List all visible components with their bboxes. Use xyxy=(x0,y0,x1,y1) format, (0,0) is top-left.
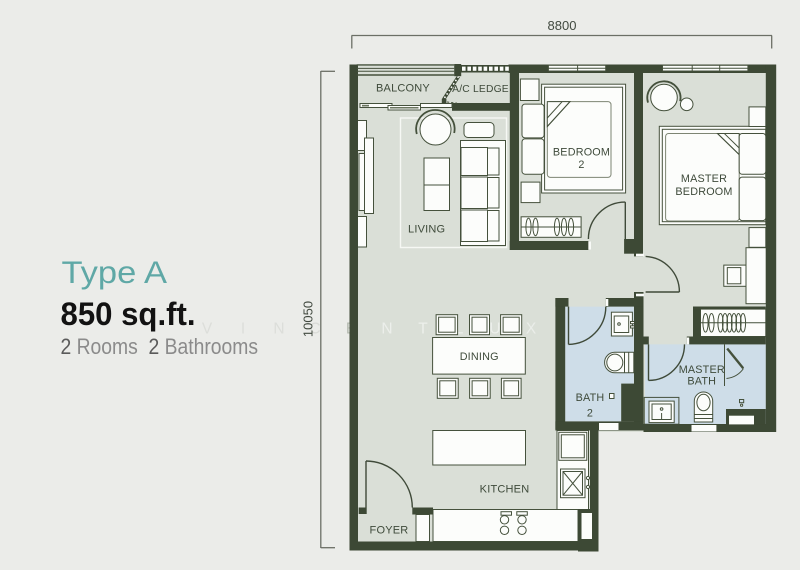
svg-text:MASTER: MASTER xyxy=(681,173,727,185)
svg-text:8800: 8800 xyxy=(548,18,577,33)
svg-text:LIVING: LIVING xyxy=(408,224,445,236)
svg-text:X: X xyxy=(526,321,537,338)
svg-text:KITCHEN: KITCHEN xyxy=(480,484,530,496)
svg-text:N: N xyxy=(273,321,284,338)
svg-text:BEDROOM: BEDROOM xyxy=(675,186,732,198)
svg-text:FOYER: FOYER xyxy=(370,525,409,537)
svg-text:2: 2 xyxy=(578,159,584,171)
svg-text:N: N xyxy=(381,321,392,338)
svg-text:U: U xyxy=(489,321,500,338)
svg-text:DINING: DINING xyxy=(460,351,499,363)
svg-text:BATH: BATH xyxy=(687,376,716,388)
svg-text:2 Rooms 2 Bathrooms: 2 Rooms 2 Bathrooms xyxy=(61,334,259,359)
svg-text:MASTER: MASTER xyxy=(679,364,725,376)
svg-text:A/C LEDGE: A/C LEDGE xyxy=(452,84,509,95)
svg-text:10050: 10050 xyxy=(301,301,316,337)
svg-text:2: 2 xyxy=(587,408,593,420)
svg-text:850 sq.ft.: 850 sq.ft. xyxy=(61,296,196,332)
svg-text:BATH: BATH xyxy=(576,392,605,404)
svg-text:Type A: Type A xyxy=(62,254,168,290)
svg-text:BEDROOM: BEDROOM xyxy=(553,146,610,158)
svg-text:BALCONY: BALCONY xyxy=(376,83,430,95)
svg-text:T: T xyxy=(418,321,428,338)
